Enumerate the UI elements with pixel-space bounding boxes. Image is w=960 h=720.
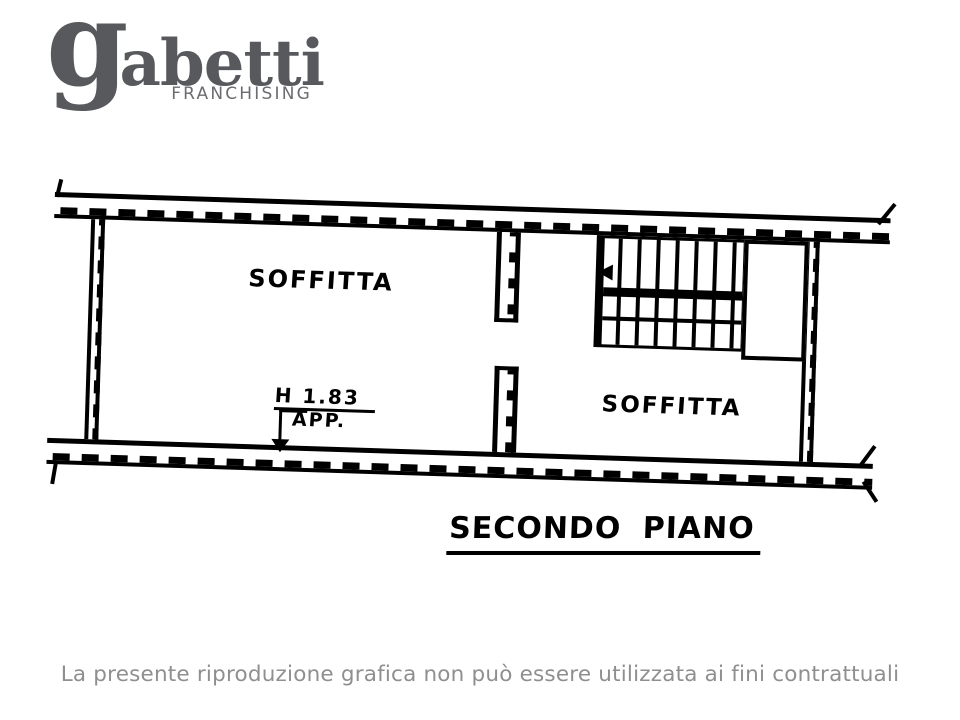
- disclaimer-text: La presente riproduzione grafica non può…: [0, 662, 960, 687]
- stair-direction-arrow-icon: [598, 264, 613, 280]
- wall-bottom: [46, 438, 872, 490]
- staircase-landing-line: [603, 287, 742, 300]
- down-arrow-icon: [278, 409, 319, 454]
- logo-letter-g: g: [46, 0, 127, 113]
- partition-wall-lower: [492, 366, 519, 453]
- page: gabetti FRANCHISING SOFFITTA SOFFITTA H …: [0, 0, 960, 720]
- stairwell-landing-room: [741, 240, 809, 362]
- down-arrow-stem: [278, 409, 282, 441]
- down-arrow-head: [271, 439, 289, 453]
- floor-plan: SOFFITTA SOFFITTA H 1.83 APP.: [46, 192, 890, 494]
- floor-title: SECONDO PIANO: [446, 511, 761, 555]
- room-label-soffitta-right: SOFFITTA: [601, 391, 743, 421]
- gabetti-logo: gabetti FRANCHISING: [46, 12, 312, 108]
- wall-left: [84, 219, 105, 439]
- staircase: [593, 235, 746, 352]
- room-label-soffitta-left: SOFFITTA: [247, 264, 394, 297]
- wall-top: [54, 192, 890, 244]
- logo-subtitle: FRANCHISING: [171, 84, 312, 104]
- staircase-step-line: [602, 317, 741, 325]
- down-arrow-bar: [279, 409, 307, 413]
- partition-wall-upper: [494, 232, 521, 323]
